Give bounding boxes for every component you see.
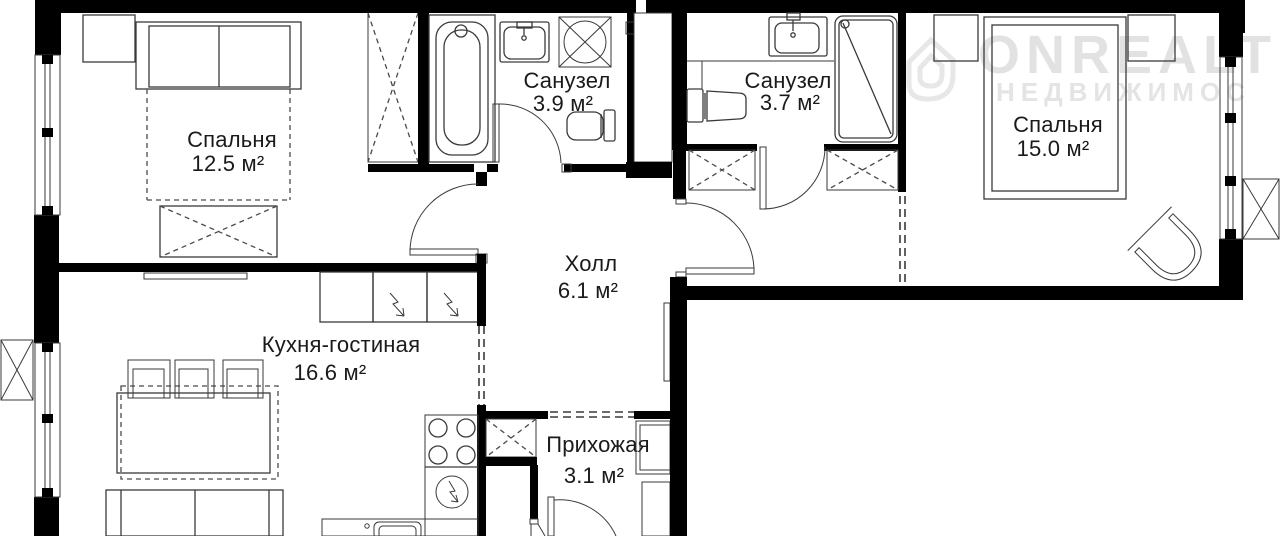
svg-text:15.0 м²: 15.0 м²: [1017, 136, 1090, 161]
svg-text:12.5 м²: 12.5 м²: [192, 151, 265, 176]
svg-text:3.1 м²: 3.1 м²: [564, 463, 624, 488]
svg-text:3.9 м²: 3.9 м²: [533, 91, 593, 116]
svg-text:НЕДВИЖИМОС: НЕДВИЖИМОС: [996, 77, 1251, 107]
svg-text:Прихожая: Прихожая: [546, 432, 650, 457]
svg-text:3.7 м²: 3.7 м²: [760, 90, 820, 115]
svg-text:Холл: Холл: [565, 251, 618, 276]
svg-text:6.1 м²: 6.1 м²: [558, 278, 618, 303]
svg-text:Санузел: Санузел: [523, 68, 610, 93]
svg-text:Кухня-гостиная: Кухня-гостиная: [262, 332, 420, 357]
svg-text:16.6 м²: 16.6 м²: [294, 360, 367, 385]
svg-text:Спальня: Спальня: [187, 127, 277, 152]
svg-text:Спальня: Спальня: [1013, 112, 1103, 137]
